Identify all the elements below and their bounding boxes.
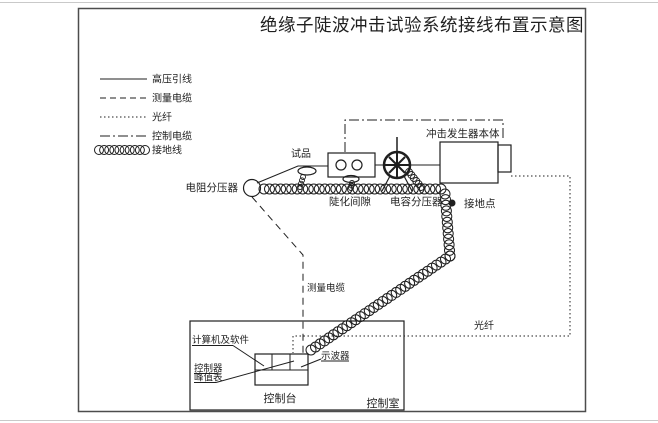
resistive-divider-label: 电阻分压器: [186, 181, 239, 194]
legend-label-ground-wire: 接地线: [152, 144, 182, 157]
legend-label-hv-lead: 高压引线: [152, 73, 192, 86]
computer-software-label: 计算机及软件: [192, 334, 250, 346]
legend-label-fiber: 光纤: [152, 111, 172, 124]
measuring-cable-run-label: 测量电缆: [307, 282, 346, 294]
ground-point-dot: [449, 200, 456, 207]
legend-label-control-cable: 控制电缆: [152, 130, 192, 143]
capacitive-divider-label: 电容分压器: [390, 195, 443, 208]
oscilloscope-label: 示波器: [321, 350, 350, 362]
test-object-label: 试品: [291, 147, 311, 160]
steepening-gap-label: 陡化间隙: [329, 195, 371, 208]
wiring-diagram-svg: 绝缘子陡波冲击试验系统接线布置示意图 高压引线 测量电缆 光纤 控制电缆 接地线…: [0, 0, 658, 423]
legend-label-measuring-cable: 测量电缆: [152, 92, 192, 105]
control-console-label: 控制台: [264, 391, 297, 405]
impulse-generator-label: 冲击发生器本体: [426, 127, 500, 140]
optical-fiber-run-label: 光纤: [474, 319, 494, 332]
ground-point-label: 接地点: [464, 197, 496, 210]
control-room-label: 控制室: [367, 396, 400, 410]
diagram-title: 绝缘子陡波冲击试验系统接线布置示意图: [260, 15, 584, 35]
diagram-canvas: 绝缘子陡波冲击试验系统接线布置示意图 高压引线 测量电缆 光纤 控制电缆 接地线…: [0, 0, 658, 423]
